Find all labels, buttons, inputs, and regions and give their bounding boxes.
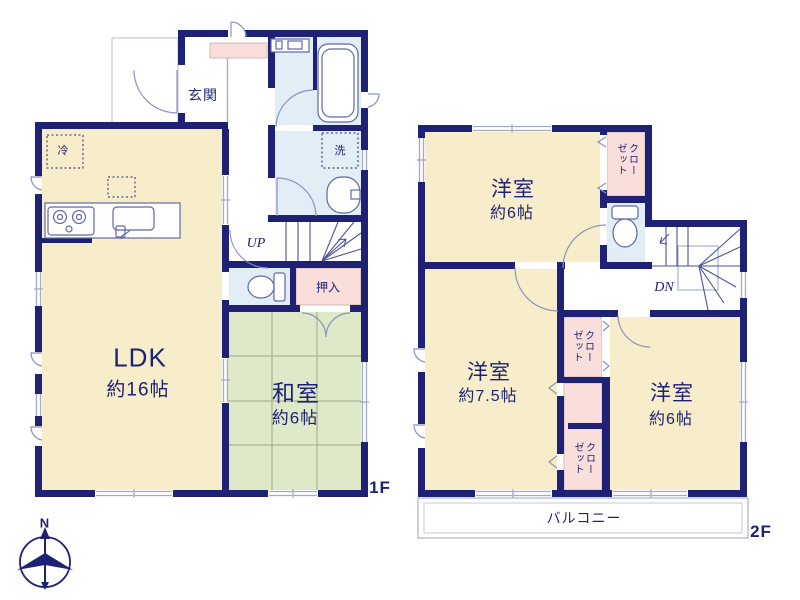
label-bedroom-west-size: 約7.5帖 — [458, 382, 517, 406]
label-compass-north: N — [40, 516, 50, 531]
entrance-porch — [112, 38, 178, 127]
bath-counter-icon — [271, 39, 309, 52]
kitchen-counter-icon — [45, 203, 180, 239]
bathtub-icon — [318, 44, 358, 122]
floor-plan-drawing — [0, 0, 800, 600]
label-bedroom-north-size: 約6帖 — [490, 199, 534, 223]
label-tatami-size: 約6帖 — [272, 404, 318, 429]
compass-icon — [17, 527, 73, 590]
label-closet-north: クローゼット — [615, 143, 638, 185]
vanity-sink-icon — [327, 177, 360, 213]
label-stairs-up: UP — [247, 236, 266, 252]
stairs-1f — [286, 222, 361, 261]
label-balcony: バルコニー — [547, 508, 622, 528]
label-oshiire: 押入 — [316, 279, 340, 296]
label-closet-south: クローゼット — [572, 442, 595, 484]
label-laundry: 洗 — [335, 142, 346, 158]
label-entrance: 玄関 — [188, 85, 218, 105]
label-stairs-dn: DN — [654, 280, 673, 296]
floor-plan-page: 玄関 冷 洗 UP 押入 LDK 約16帖 和室 約6帖 1F 洋室 約6帖 ク… — [0, 0, 800, 600]
label-closet-mid: クローゼット — [571, 330, 594, 372]
label-fridge: 冷 — [58, 142, 69, 158]
label-bedroom-east-size: 約6帖 — [649, 405, 693, 429]
label-ldk: LDK — [113, 343, 167, 374]
toilet-icon-2f — [612, 206, 638, 247]
label-floor2: 2F — [750, 522, 772, 542]
label-bedroom-east: 洋室 — [650, 377, 694, 407]
label-floor1: 1F — [369, 478, 391, 498]
dn-arrow-icon — [660, 234, 669, 244]
label-ldk-size: 約16帖 — [106, 375, 169, 402]
stairs-2f — [652, 227, 740, 310]
